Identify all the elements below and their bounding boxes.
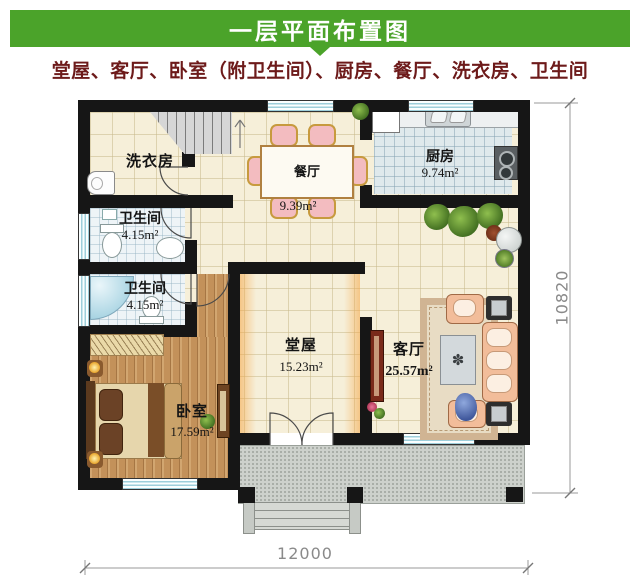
room-list-subtitle: 堂屋、客厅、卧室（附卫生间）、厨房、餐厅、洗衣房、卫生间 (0, 56, 640, 83)
porch (238, 445, 525, 504)
sofa-cushion (486, 374, 512, 393)
lamp-glow (89, 453, 100, 464)
side-table (486, 402, 512, 426)
porch-pillar (347, 487, 363, 503)
washing-machine (87, 171, 115, 195)
dining-table-label: 餐厅 (294, 165, 320, 180)
sofa-cushion (486, 328, 512, 347)
step-rail (349, 502, 361, 534)
burner (499, 166, 513, 180)
toilet-tank (139, 316, 164, 324)
room-name: 客厅 (369, 342, 449, 359)
wall-hall-south (240, 433, 270, 445)
wall-bath2-north (78, 262, 197, 274)
window-dining (267, 100, 334, 112)
room-name: 卫生间 (100, 282, 190, 298)
wall-right (518, 100, 530, 445)
room-label-laundry: 洗衣房 (100, 154, 200, 171)
room-name: 卧室 (152, 404, 232, 421)
bed-headboard (86, 381, 95, 459)
lamp-glow (89, 362, 100, 373)
dining-chair (270, 124, 298, 147)
window-bedroom (122, 478, 198, 490)
room-area: 9.74m² (400, 166, 480, 181)
dimension-label-width: 12000 (270, 544, 340, 563)
armchair-cushion (453, 299, 476, 317)
wall-hall-south (333, 433, 403, 445)
room-area: 9.39m² (258, 199, 338, 214)
porch-steps (243, 502, 361, 530)
room-label-bath1: 卫生间 4.15m² (95, 212, 185, 242)
porch-pillar (238, 487, 255, 503)
decor-vase (455, 393, 477, 421)
porch-pillar (506, 487, 523, 502)
room-name: 卫生间 (95, 212, 185, 228)
room-area: 15.23m² (261, 360, 341, 375)
wardrobe (90, 334, 164, 356)
room-area: 17.59m² (152, 425, 232, 440)
dimension-label-height: 10820 (553, 263, 572, 333)
floor-plan-page: 一层平面布置图 堂屋、客厅、卧室（附卫生间）、厨房、餐厅、洗衣房、卫生间 (0, 0, 640, 579)
title-banner: 一层平面布置图 (10, 10, 630, 47)
window-bath1 (78, 213, 90, 260)
side-table-top (491, 406, 507, 422)
washer-door (91, 177, 103, 190)
hall-light-right (344, 274, 360, 433)
room-name: 厨房 (400, 150, 480, 166)
room-name: 堂屋 (261, 338, 341, 355)
wall-laundry-south (78, 195, 233, 208)
nightstand-lamp (87, 451, 103, 468)
room-label-bath2: 卫生间 4.15m² (100, 282, 190, 312)
hall-light-left (240, 274, 256, 433)
room-name: 洗衣房 (100, 154, 200, 171)
sofa-cushion (486, 351, 512, 370)
wall-hall-north (228, 262, 365, 274)
room-area: 4.15m² (95, 228, 185, 243)
side-table (486, 296, 512, 320)
sink-basin (449, 111, 468, 123)
burner (499, 151, 515, 167)
wall-bedroom-east (228, 262, 240, 478)
window-kitchen (408, 100, 474, 112)
dimension-tick (80, 563, 533, 573)
potted-plant-small (495, 249, 514, 268)
page-title: 一层平面布置图 (229, 12, 411, 46)
room-area: 4.15m² (100, 298, 190, 313)
room-label-dining-area: 9.39m² (258, 199, 338, 214)
side-table-top (491, 300, 507, 316)
room-label-bedroom: 卧室 17.59m² (152, 404, 232, 439)
window-bath2 (78, 275, 90, 327)
room-area: 25.57m² (369, 364, 449, 380)
pillow (99, 389, 123, 421)
dining-table: 餐厅 (260, 145, 354, 199)
stove (494, 146, 518, 180)
room-label-kitchen: 厨房 9.74m² (400, 150, 480, 180)
pillow (99, 423, 123, 455)
nightstand-lamp (87, 360, 103, 377)
bedroom-walkway-floor (197, 274, 228, 337)
dining-chair (308, 124, 336, 147)
room-label-hall: 堂屋 15.23m² (261, 338, 341, 374)
room-label-living: 客厅 25.57m² (369, 342, 449, 379)
step-rail (243, 502, 255, 534)
banner-pointer (310, 47, 330, 56)
sink-basin (430, 111, 449, 123)
